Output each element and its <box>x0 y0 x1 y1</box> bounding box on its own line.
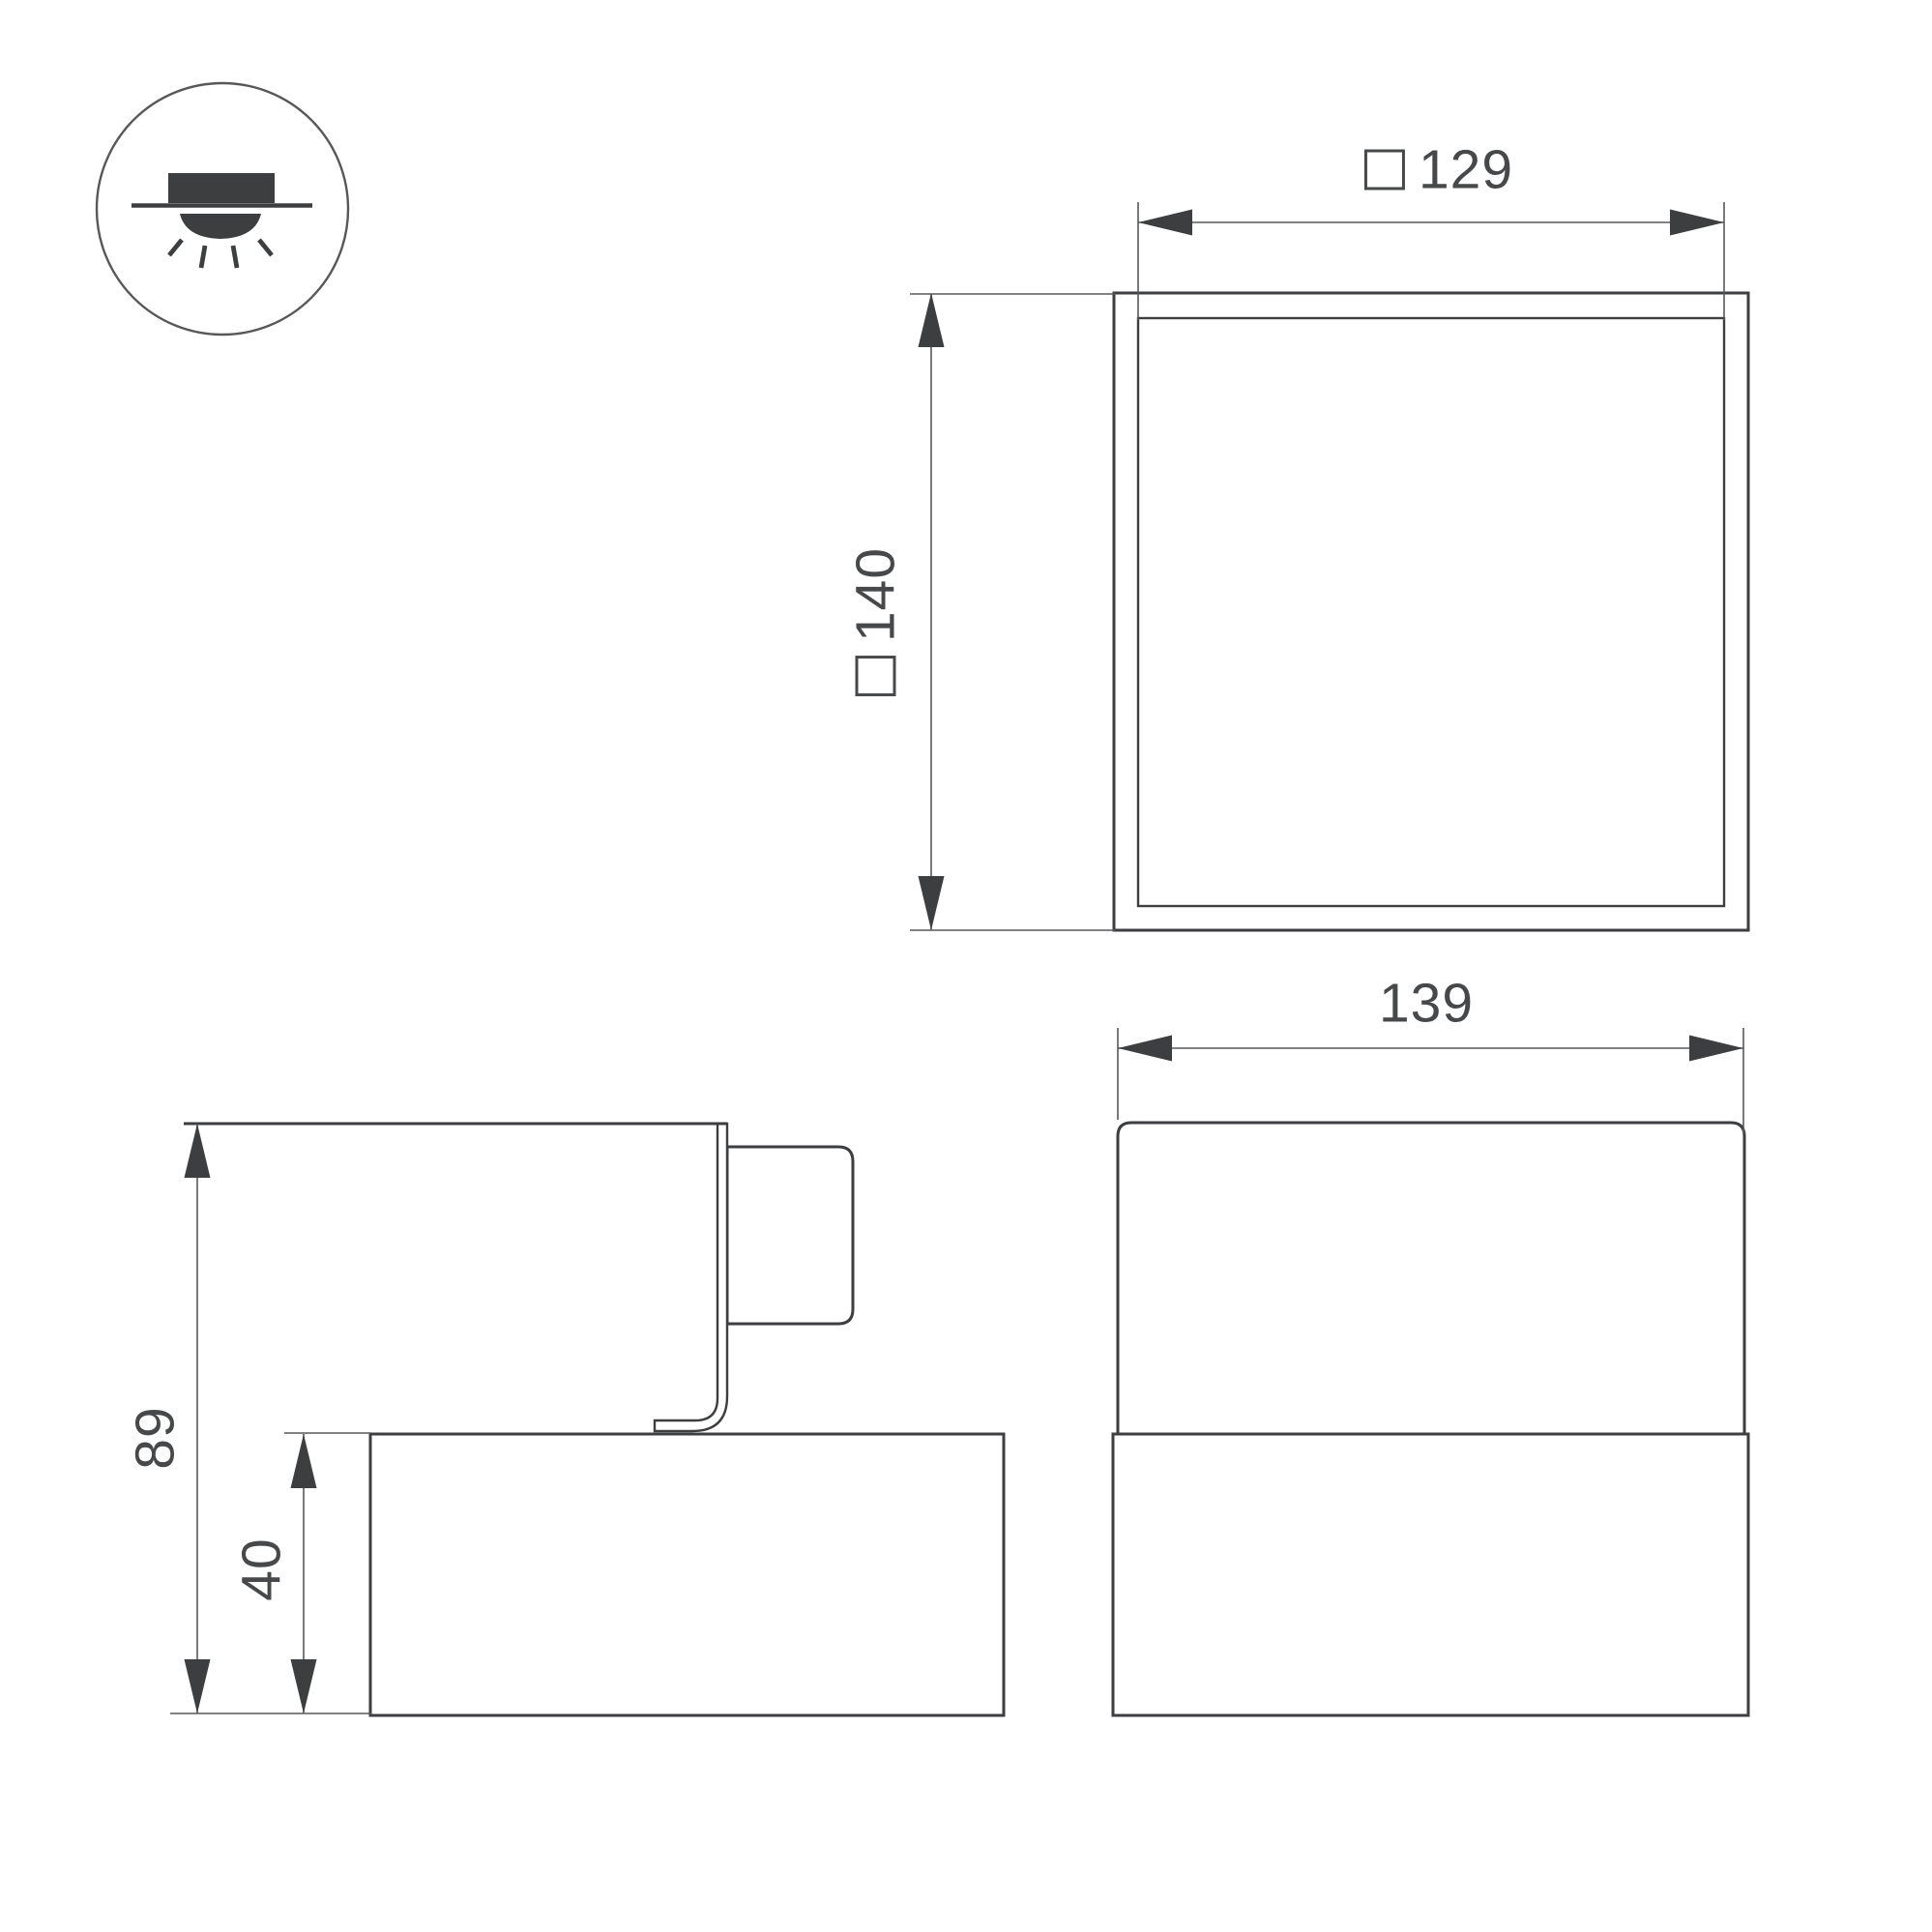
dim-140-arrow-bottom <box>919 876 945 930</box>
dim-139-lines <box>1118 1028 1743 1134</box>
front-view <box>1113 1028 1748 1715</box>
dim-40-arrow-top <box>291 1434 317 1488</box>
dim-label-40: 40 <box>235 1537 290 1600</box>
dim-value-140: 140 <box>849 547 904 642</box>
icon-circle <box>97 83 348 335</box>
dim-129-arrow-left <box>1138 210 1192 236</box>
icon-housing <box>168 173 275 203</box>
top-view-inner-square <box>1138 318 1724 906</box>
dim-value-40: 40 <box>235 1537 290 1600</box>
dim-140-arrow-top <box>919 293 945 347</box>
side-view-mounting-bracket <box>655 1124 727 1431</box>
dim-129-arrow-right <box>1670 210 1724 236</box>
dim-140-lines <box>910 294 1115 930</box>
dim-139-arrow-right <box>1689 1036 1743 1062</box>
dim-89-arrow-top <box>185 1124 211 1178</box>
side-view-base-box <box>370 1434 1004 1715</box>
drawing-geometry <box>0 0 1932 1932</box>
dim-value-139: 139 <box>1379 977 1474 1032</box>
dim-label-89: 89 <box>129 1406 184 1469</box>
technical-drawing-canvas: 129 140 139 89 40 <box>0 0 1932 1932</box>
top-view <box>910 202 1748 930</box>
dim-label-140: 140 <box>849 547 904 696</box>
dim-label-139: 139 <box>1379 977 1474 1032</box>
side-view-driver-box <box>727 1147 853 1324</box>
square-symbol <box>1364 149 1405 190</box>
square-symbol <box>855 656 895 696</box>
side-view <box>170 1124 1004 1715</box>
dim-label-129: 129 <box>1364 143 1513 198</box>
front-view-base-box <box>1113 1434 1748 1715</box>
ceiling-mount-icon <box>97 83 348 335</box>
dim-40-arrow-bottom <box>291 1659 317 1713</box>
dim-89-lines <box>170 1124 371 1713</box>
dim-139-arrow-left <box>1118 1036 1172 1062</box>
dim-value-129: 129 <box>1419 143 1513 198</box>
dim-89-arrow-bottom <box>185 1659 211 1713</box>
dim-value-89: 89 <box>129 1406 184 1469</box>
front-view-head-box <box>1118 1123 1744 1434</box>
